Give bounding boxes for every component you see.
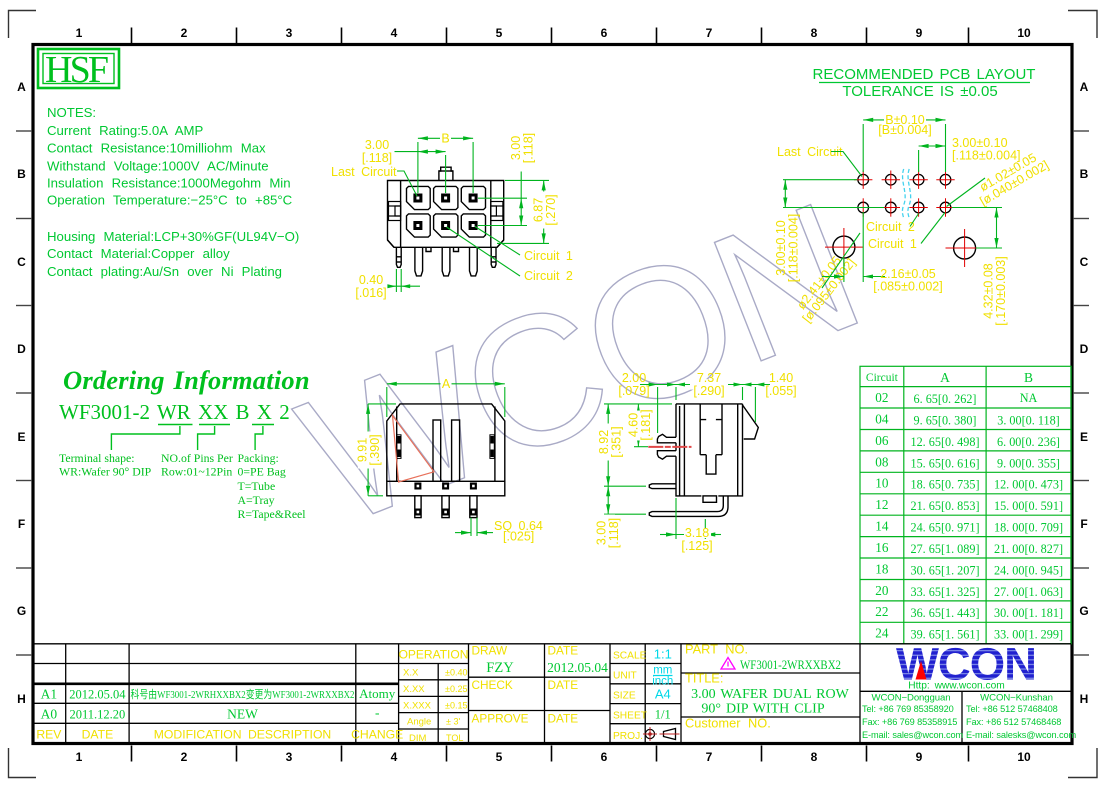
svg-text:APPROVE: APPROVE bbox=[472, 712, 529, 726]
svg-text:DATE: DATE bbox=[548, 712, 579, 726]
svg-text:6. 00[0. 236]: 6. 00[0. 236] bbox=[997, 435, 1060, 449]
svg-text:[.085±0.002]: [.085±0.002] bbox=[873, 280, 942, 294]
svg-text:Row:01~12Pin: Row:01~12Pin bbox=[161, 465, 232, 479]
svg-text:E-mail: salesks@wcon.com: E-mail: salesks@wcon.com bbox=[966, 730, 1077, 740]
svg-text:Withstand Voltage:1000V AC/M: Withstand Voltage:1000V AC/Minute bbox=[47, 159, 269, 174]
svg-text:3.00 WAFER DUAL ROW: 3.00 WAFER DUAL ROW bbox=[691, 687, 850, 702]
svg-text:OPERATION: OPERATION bbox=[399, 648, 469, 662]
svg-text:22: 22 bbox=[875, 604, 888, 619]
svg-text:SCALE: SCALE bbox=[613, 651, 647, 662]
svg-text:-: - bbox=[375, 705, 380, 720]
svg-text:[.016]: [.016] bbox=[355, 286, 386, 300]
svg-text:Circuit 1: Circuit 1 bbox=[868, 237, 917, 251]
svg-text:A: A bbox=[17, 80, 26, 94]
svg-text:CHANGE: CHANGE bbox=[351, 728, 403, 742]
svg-text:Contact Resistance:10milliohm: Contact Resistance:10milliohm Max bbox=[47, 141, 266, 156]
svg-text:3.00: 3.00 bbox=[365, 138, 389, 152]
svg-text:2: 2 bbox=[181, 26, 188, 40]
svg-text:[.025]: [.025] bbox=[503, 530, 534, 544]
svg-text:TOLERANCE IS ±0.05: TOLERANCE IS ±0.05 bbox=[842, 83, 997, 100]
svg-text:C: C bbox=[17, 255, 26, 269]
svg-text:[.390]: [.390] bbox=[368, 434, 382, 465]
svg-text:33. 65[1. 325]: 33. 65[1. 325] bbox=[910, 585, 979, 599]
svg-text:0.40: 0.40 bbox=[359, 273, 383, 287]
svg-text:PROJ.: PROJ. bbox=[613, 731, 643, 742]
svg-text:Insulation Resistance:1000Meg: Insulation Resistance:1000Megohm Min bbox=[47, 176, 291, 191]
svg-text:Customer NO.: Customer NO. bbox=[685, 716, 771, 731]
svg-text:16: 16 bbox=[875, 540, 889, 555]
svg-text:12: 12 bbox=[875, 497, 888, 512]
svg-text:T=Tube: T=Tube bbox=[238, 479, 276, 493]
svg-text:15. 65[0. 616]: 15. 65[0. 616] bbox=[910, 456, 979, 470]
svg-text:7: 7 bbox=[706, 750, 713, 764]
svg-text:WF3001-2 WR XX B X 2: WF3001-2 WR XX B X 2 bbox=[59, 400, 290, 424]
svg-text:2012.05.04: 2012.05.04 bbox=[69, 688, 126, 702]
svg-text:Http: www.wcon.com: Http: www.wcon.com bbox=[908, 681, 1005, 692]
svg-text:20: 20 bbox=[875, 583, 889, 598]
svg-text:8: 8 bbox=[811, 26, 818, 40]
svg-text:2: 2 bbox=[181, 750, 188, 764]
svg-text:[.118]: [.118] bbox=[522, 133, 536, 163]
svg-text:27. 65[1. 089]: 27. 65[1. 089] bbox=[910, 542, 979, 556]
svg-text:Circuit 2: Circuit 2 bbox=[524, 269, 573, 283]
svg-text:±0.15: ±0.15 bbox=[445, 700, 467, 710]
svg-text:90° DIP WITH CLIP: 90° DIP WITH CLIP bbox=[701, 702, 824, 717]
svg-text:[.079]: [.079] bbox=[618, 384, 649, 398]
svg-text:7: 7 bbox=[706, 26, 713, 40]
svg-text:[.118]: [.118] bbox=[362, 151, 392, 165]
svg-text:A: A bbox=[940, 370, 950, 385]
svg-text:G: G bbox=[1079, 604, 1088, 618]
svg-text:24: 24 bbox=[875, 626, 889, 641]
svg-text:RECOMMENDED PCB LAYOUT: RECOMMENDED PCB LAYOUT bbox=[813, 66, 1036, 83]
svg-text:[.351]: [.351] bbox=[610, 426, 624, 457]
svg-text:9: 9 bbox=[916, 750, 923, 764]
svg-text:TITLE:: TITLE: bbox=[685, 671, 723, 686]
svg-text:B: B bbox=[441, 131, 449, 145]
svg-text:0=PE Bag: 0=PE Bag bbox=[238, 465, 286, 479]
svg-text:18. 00[0. 709]: 18. 00[0. 709] bbox=[994, 521, 1063, 535]
svg-text:B: B bbox=[1024, 370, 1033, 385]
svg-text:18. 65[0. 735]: 18. 65[0. 735] bbox=[910, 478, 979, 492]
svg-text:Packing:: Packing: bbox=[238, 451, 279, 465]
svg-text:HSF: HSF bbox=[45, 49, 109, 91]
svg-text:1: 1 bbox=[76, 750, 83, 764]
svg-text:9. 00[0. 355]: 9. 00[0. 355] bbox=[997, 456, 1060, 470]
svg-text:10: 10 bbox=[875, 476, 889, 491]
svg-text:1: 1 bbox=[76, 26, 83, 40]
svg-text:Last Circuit: Last Circuit bbox=[331, 165, 397, 179]
svg-text:R=Tape&Reel: R=Tape&Reel bbox=[238, 507, 307, 521]
svg-text:18: 18 bbox=[875, 561, 889, 576]
svg-text:PART NO.: PART NO. bbox=[685, 642, 748, 657]
svg-text:Ordering Information: Ordering Information bbox=[63, 365, 310, 395]
svg-text:6. 65[0. 262]: 6. 65[0. 262] bbox=[914, 392, 977, 406]
svg-text:Fax: +86 769 85358915: Fax: +86 769 85358915 bbox=[862, 717, 957, 727]
svg-text:DATE: DATE bbox=[82, 728, 114, 742]
svg-text:WR:Wafer 90° DIP: WR:Wafer 90° DIP bbox=[59, 465, 152, 479]
svg-text:A=Tray: A=Tray bbox=[238, 493, 275, 507]
svg-text:21. 00[0. 827]: 21. 00[0. 827] bbox=[994, 542, 1063, 556]
svg-text:A: A bbox=[442, 377, 451, 391]
svg-text:Terminal shape:: Terminal shape: bbox=[59, 451, 135, 465]
svg-text:Housing Material:LCP+30%GF(UL: Housing Material:LCP+30%GF(UL94V−O) bbox=[47, 229, 299, 244]
svg-text:DIM: DIM bbox=[409, 733, 427, 744]
svg-text:9. 65[0. 380]: 9. 65[0. 380] bbox=[914, 413, 977, 427]
svg-text:3. 00[0. 118]: 3. 00[0. 118] bbox=[997, 413, 1060, 427]
svg-text:1/1: 1/1 bbox=[655, 708, 671, 722]
svg-text:[.270]: [.270] bbox=[544, 194, 558, 225]
svg-text:X.XX: X.XX bbox=[403, 684, 425, 695]
svg-text:Tel: +86 512 57468408: Tel: +86 512 57468408 bbox=[966, 704, 1058, 714]
svg-text:10: 10 bbox=[1017, 26, 1031, 40]
svg-text:Circuit 1: Circuit 1 bbox=[524, 249, 573, 263]
svg-text:Operation Temperature:−25°C: Operation Temperature:−25°C to +85°C bbox=[47, 193, 293, 208]
svg-text:3: 3 bbox=[286, 26, 293, 40]
svg-text:D: D bbox=[1080, 342, 1089, 356]
svg-text:Contact Material:Copper allo: Contact Material:Copper alloy bbox=[47, 246, 230, 261]
svg-text:12. 65[0. 498]: 12. 65[0. 498] bbox=[910, 435, 979, 449]
svg-text:REV: REV bbox=[36, 728, 62, 742]
svg-text:±0.40: ±0.40 bbox=[445, 668, 467, 678]
svg-text:H: H bbox=[17, 692, 26, 706]
svg-text:30. 65[1. 207]: 30. 65[1. 207] bbox=[910, 563, 979, 577]
svg-text:Circuit: Circuit bbox=[866, 372, 899, 384]
svg-text:NEW: NEW bbox=[227, 707, 258, 722]
svg-text:A: A bbox=[1080, 80, 1089, 94]
svg-text:[B±0.004]: [B±0.004] bbox=[878, 123, 931, 137]
svg-text:4: 4 bbox=[391, 750, 398, 764]
svg-text:08: 08 bbox=[875, 454, 889, 469]
svg-text:14: 14 bbox=[875, 519, 889, 534]
svg-text:24. 65[0. 971]: 24. 65[0. 971] bbox=[910, 521, 979, 535]
svg-text:SHEET: SHEET bbox=[613, 711, 647, 722]
svg-text:A0: A0 bbox=[41, 707, 58, 722]
svg-text:1:1: 1:1 bbox=[654, 647, 672, 662]
svg-text:Fax: +86 512 57468468: Fax: +86 512 57468468 bbox=[966, 717, 1061, 727]
svg-text:5: 5 bbox=[496, 26, 503, 40]
svg-text:F: F bbox=[1080, 517, 1087, 531]
svg-text:H: H bbox=[1080, 692, 1089, 706]
svg-text:9: 9 bbox=[916, 26, 923, 40]
svg-text:NOTES:: NOTES: bbox=[47, 105, 96, 120]
svg-text:E: E bbox=[17, 430, 25, 444]
svg-text:7.37: 7.37 bbox=[697, 371, 721, 385]
svg-text:Atomy: Atomy bbox=[359, 686, 396, 701]
svg-text:Angle: Angle bbox=[407, 717, 431, 728]
svg-text:MODIFICATION DESCRIPTION: MODIFICATION DESCRIPTION bbox=[154, 728, 331, 742]
svg-text:Circuit 2: Circuit 2 bbox=[866, 220, 915, 234]
svg-text:Current Rating:5.0A AMP: Current Rating:5.0A AMP bbox=[47, 123, 204, 138]
svg-text:[.170±0.003]: [.170±0.003] bbox=[994, 256, 1008, 325]
svg-text:UNIT: UNIT bbox=[613, 671, 637, 682]
svg-text:±0.25: ±0.25 bbox=[445, 684, 467, 694]
svg-text:DATE: DATE bbox=[548, 644, 579, 658]
svg-text:X.XXX: X.XXX bbox=[403, 700, 432, 711]
svg-text:5: 5 bbox=[496, 750, 503, 764]
svg-text:B: B bbox=[1080, 167, 1089, 181]
svg-text:06: 06 bbox=[875, 433, 889, 448]
svg-text:2.00: 2.00 bbox=[622, 371, 646, 385]
svg-text:2011.12.20: 2011.12.20 bbox=[70, 708, 126, 722]
svg-text:27. 00[1. 063]: 27. 00[1. 063] bbox=[994, 585, 1063, 599]
svg-text:E-mail: sales@wcon.com: E-mail: sales@wcon.com bbox=[862, 730, 964, 740]
svg-text:[.118±0.004]: [.118±0.004] bbox=[952, 149, 1021, 163]
svg-text:[.118]: [.118] bbox=[607, 518, 621, 548]
svg-text:[.118±0.004]: [.118±0.004] bbox=[787, 214, 801, 283]
svg-text:TOL: TOL bbox=[446, 733, 463, 743]
svg-text:[.055]: [.055] bbox=[765, 384, 796, 398]
svg-text:D: D bbox=[17, 342, 26, 356]
svg-text:WCON−Dongguan: WCON−Dongguan bbox=[872, 693, 951, 704]
svg-text:NO.of Pins Per: NO.of Pins Per bbox=[161, 451, 233, 465]
svg-text:± 3': ± 3' bbox=[446, 717, 460, 727]
svg-text:NA: NA bbox=[1020, 391, 1038, 405]
svg-text:CHECK: CHECK bbox=[472, 678, 513, 692]
svg-text:DRAW: DRAW bbox=[472, 644, 508, 658]
svg-text:F: F bbox=[18, 517, 25, 531]
svg-text:02: 02 bbox=[875, 390, 888, 405]
svg-text:[.181]: [.181] bbox=[639, 409, 653, 440]
svg-text:科号由WF3001-2WRHXXBX2变更为WF3001-2: 科号由WF3001-2WRHXXBX2变更为WF3001-2WRXXBX2 bbox=[131, 687, 355, 701]
svg-text:3: 3 bbox=[286, 750, 293, 764]
svg-text:[.290]: [.290] bbox=[693, 384, 724, 398]
svg-text:1.40: 1.40 bbox=[769, 371, 793, 385]
svg-text:24. 00[0. 945]: 24. 00[0. 945] bbox=[994, 563, 1063, 577]
svg-text:C: C bbox=[1080, 255, 1089, 269]
svg-text:[.125]: [.125] bbox=[681, 539, 712, 553]
svg-text:WCON−Kunshan: WCON−Kunshan bbox=[980, 693, 1053, 704]
svg-text:21. 65[0. 853]: 21. 65[0. 853] bbox=[910, 499, 979, 513]
svg-text:3.18: 3.18 bbox=[685, 526, 709, 540]
svg-text:B: B bbox=[17, 167, 26, 181]
svg-text:30. 00[1. 181]: 30. 00[1. 181] bbox=[994, 606, 1063, 620]
svg-text:X.X: X.X bbox=[403, 668, 419, 679]
svg-text:12. 00[0. 473]: 12. 00[0. 473] bbox=[994, 478, 1063, 492]
svg-text:6: 6 bbox=[601, 750, 608, 764]
svg-text:4: 4 bbox=[391, 26, 398, 40]
svg-text:10: 10 bbox=[1017, 750, 1031, 764]
svg-text:15. 00[0. 591]: 15. 00[0. 591] bbox=[994, 499, 1063, 513]
svg-text:E: E bbox=[1080, 430, 1088, 444]
svg-text:Tel: +86 769 85358920: Tel: +86 769 85358920 bbox=[862, 704, 954, 714]
svg-text:WF3001-2WRXXBX2: WF3001-2WRXXBX2 bbox=[740, 658, 841, 672]
svg-text:SIZE: SIZE bbox=[613, 691, 636, 702]
svg-text:8: 8 bbox=[811, 750, 818, 764]
svg-text:2012.05.04: 2012.05.04 bbox=[547, 660, 608, 675]
svg-text:04: 04 bbox=[875, 411, 889, 426]
svg-text:FZY: FZY bbox=[486, 660, 514, 676]
svg-text:A1: A1 bbox=[41, 687, 58, 702]
svg-text:Contact plating:Au/Sn over: Contact plating:Au/Sn over Ni Plating bbox=[47, 264, 282, 279]
svg-text:G: G bbox=[17, 604, 26, 618]
svg-text:A4: A4 bbox=[655, 687, 671, 702]
svg-text:36. 65[1. 443]: 36. 65[1. 443] bbox=[910, 606, 979, 620]
svg-text:DATE: DATE bbox=[548, 678, 579, 692]
svg-text:6: 6 bbox=[601, 26, 608, 40]
